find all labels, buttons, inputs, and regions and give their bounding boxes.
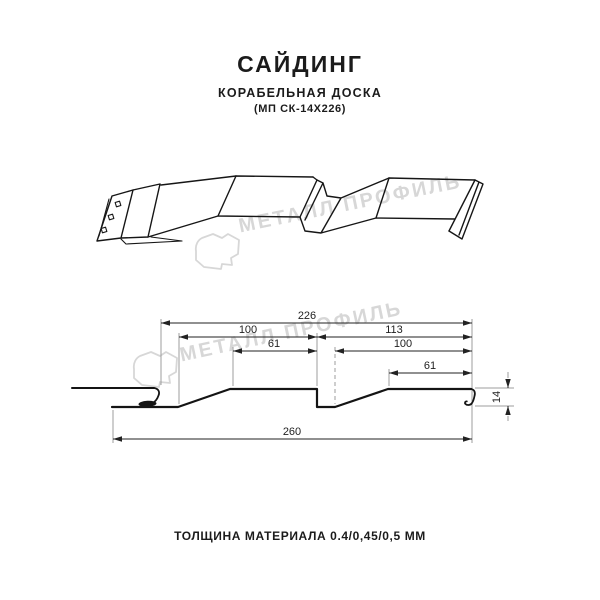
dim-right-flat: 61 bbox=[424, 360, 436, 372]
dim-total-width: 260 bbox=[283, 426, 301, 438]
left-joint-curve bbox=[153, 388, 160, 403]
section-profile bbox=[72, 388, 475, 407]
main-profile-line bbox=[112, 389, 471, 407]
dimension-lines bbox=[113, 323, 508, 439]
dim-overall-top: 226 bbox=[298, 310, 316, 322]
dimension-arrows bbox=[113, 320, 511, 441]
watermark-text: МЕТАЛЛ ПРОФИЛЬ bbox=[178, 298, 405, 367]
thickness-note: ТОЛЩИНА МАТЕРИАЛА 0.4/0,45/0,5 ММ bbox=[0, 529, 600, 543]
dim-left-panel: 100 bbox=[239, 324, 257, 336]
drawing-canvas: МЕТАЛЛ ПРОФИЛЬ МЕТАЛЛ ПРОФИЛЬ bbox=[0, 0, 600, 600]
product-drawing-page: САЙДИНГ КОРАБЕЛЬНАЯ ДОСКА (МП СК-14Х226)… bbox=[0, 0, 600, 600]
nail-hole bbox=[108, 214, 114, 220]
right-end-curl bbox=[465, 389, 475, 405]
dim-height: 14 bbox=[491, 391, 503, 403]
nail-hole bbox=[115, 201, 121, 207]
nail-hole bbox=[101, 227, 107, 233]
watermark-text: МЕТАЛЛ ПРОФИЛЬ bbox=[237, 171, 464, 238]
watermark-upper: МЕТАЛЛ ПРОФИЛЬ bbox=[196, 171, 464, 269]
dim-right-panel: 113 bbox=[385, 324, 403, 336]
dim-right-inner: 100 bbox=[394, 338, 412, 350]
metal-profil-logo-icon bbox=[196, 234, 239, 269]
dim-left-flat: 61 bbox=[268, 338, 280, 350]
metal-profil-logo-icon bbox=[134, 352, 177, 387]
